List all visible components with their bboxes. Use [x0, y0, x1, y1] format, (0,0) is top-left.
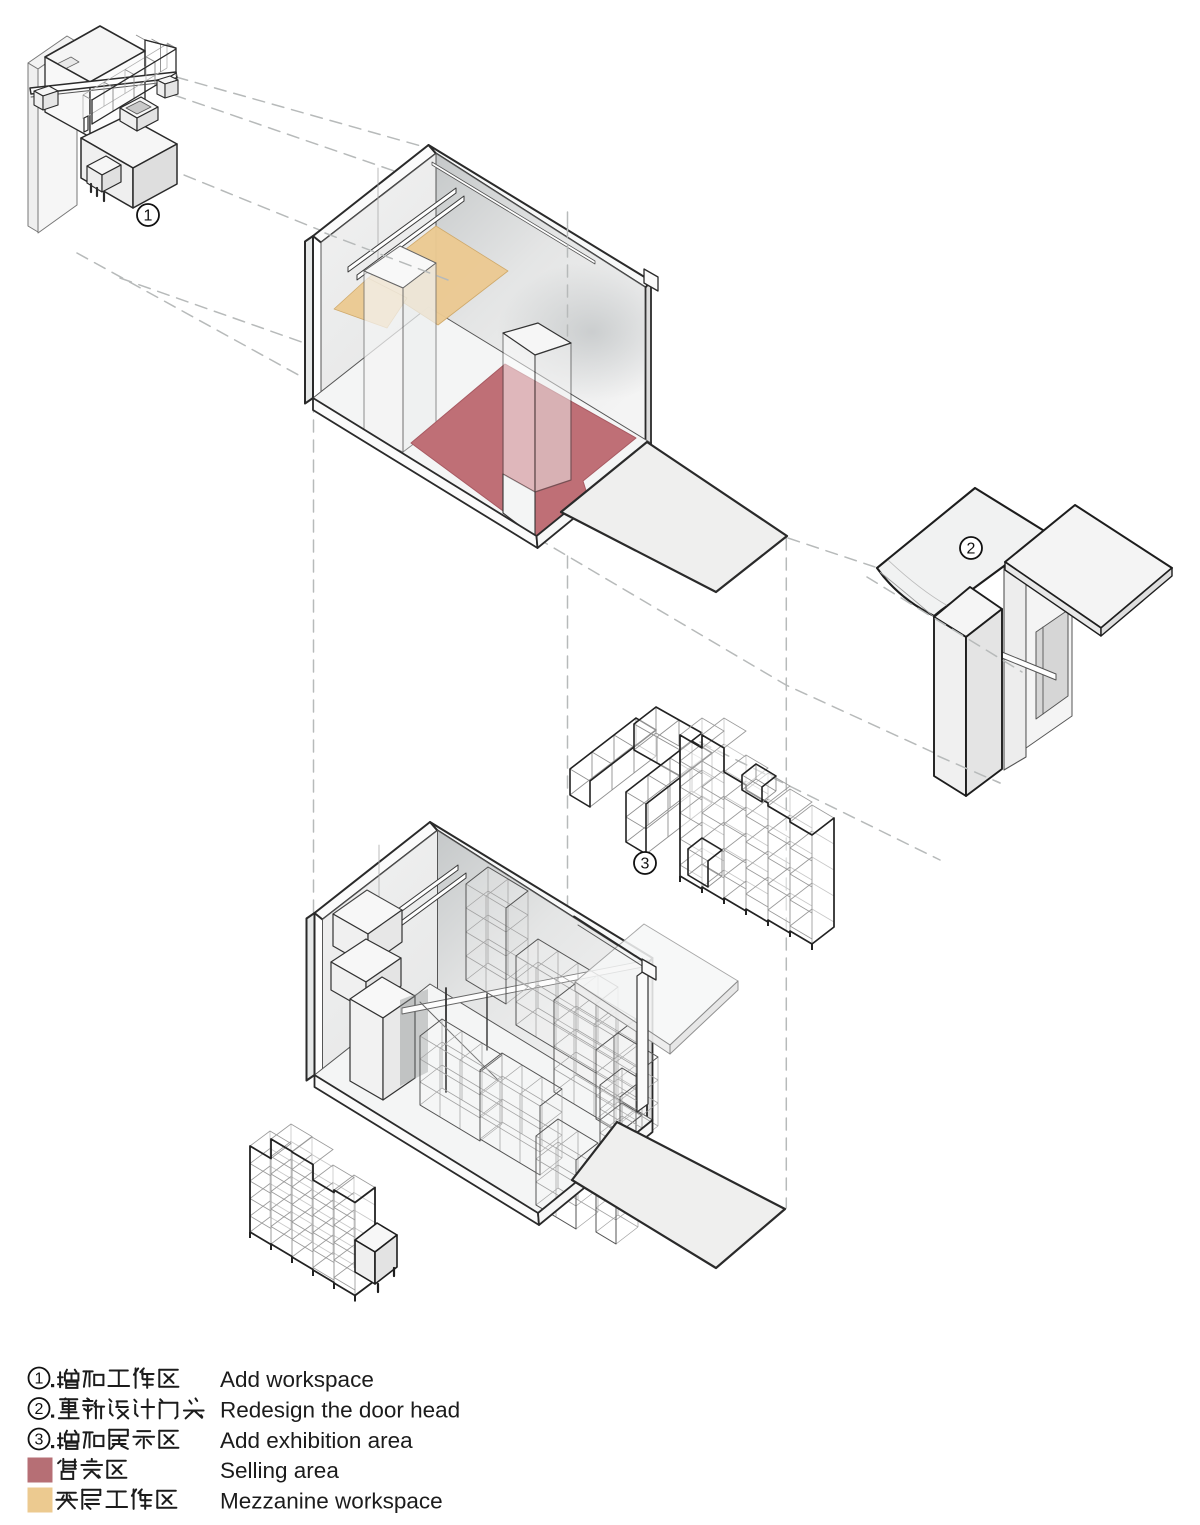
svg-text:Redesign the door head: Redesign the door head	[220, 1398, 460, 1423]
svg-text:Add workspace: Add workspace	[220, 1367, 374, 1392]
svg-text:2: 2	[967, 541, 976, 558]
svg-text:Selling area: Selling area	[220, 1458, 339, 1483]
svg-text:1: 1	[35, 1371, 44, 1388]
svg-text:Mezzanine workspace: Mezzanine workspace	[220, 1489, 443, 1514]
svg-text:3: 3	[35, 1432, 44, 1449]
svg-text:2: 2	[35, 1401, 44, 1418]
svg-text:1: 1	[144, 208, 153, 225]
svg-text:Add exhibition area: Add exhibition area	[220, 1428, 413, 1453]
svg-text:3: 3	[641, 856, 650, 873]
